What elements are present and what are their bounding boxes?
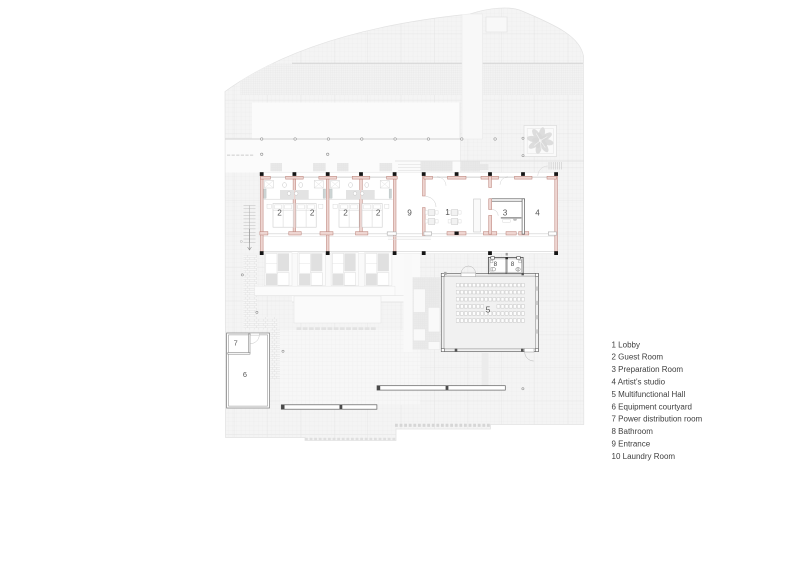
svg-text:5: 5 [486,304,491,314]
svg-text:4 Artist's studio: 4 Artist's studio [612,378,666,387]
svg-text:6 Equipment courtyard: 6 Equipment courtyard [612,402,693,411]
svg-text:5 Multifunctional Hall: 5 Multifunctional Hall [612,390,686,399]
svg-text:1: 1 [445,208,450,217]
svg-text:3 Preparation Room: 3 Preparation Room [612,365,684,374]
svg-text:2 Guest Room: 2 Guest Room [612,353,664,362]
svg-text:2: 2 [310,208,315,217]
svg-text:7: 7 [234,339,238,348]
svg-text:3: 3 [503,208,508,217]
svg-text:8: 8 [494,261,498,268]
svg-text:9 Entrance: 9 Entrance [612,440,651,449]
svg-text:1 Lobby: 1 Lobby [612,340,640,349]
svg-text:4: 4 [535,208,540,217]
svg-text:10 Laundry Room: 10 Laundry Room [612,452,676,461]
svg-text:9: 9 [407,208,412,217]
svg-text:8: 8 [511,261,515,268]
svg-text:7 Power distribution room: 7 Power distribution room [612,415,703,424]
svg-text:6: 6 [243,370,247,379]
svg-text:2: 2 [376,208,381,217]
svg-text:2: 2 [277,208,282,217]
svg-text:8 Bathroom: 8 Bathroom [612,427,654,436]
svg-text:2: 2 [343,208,348,217]
